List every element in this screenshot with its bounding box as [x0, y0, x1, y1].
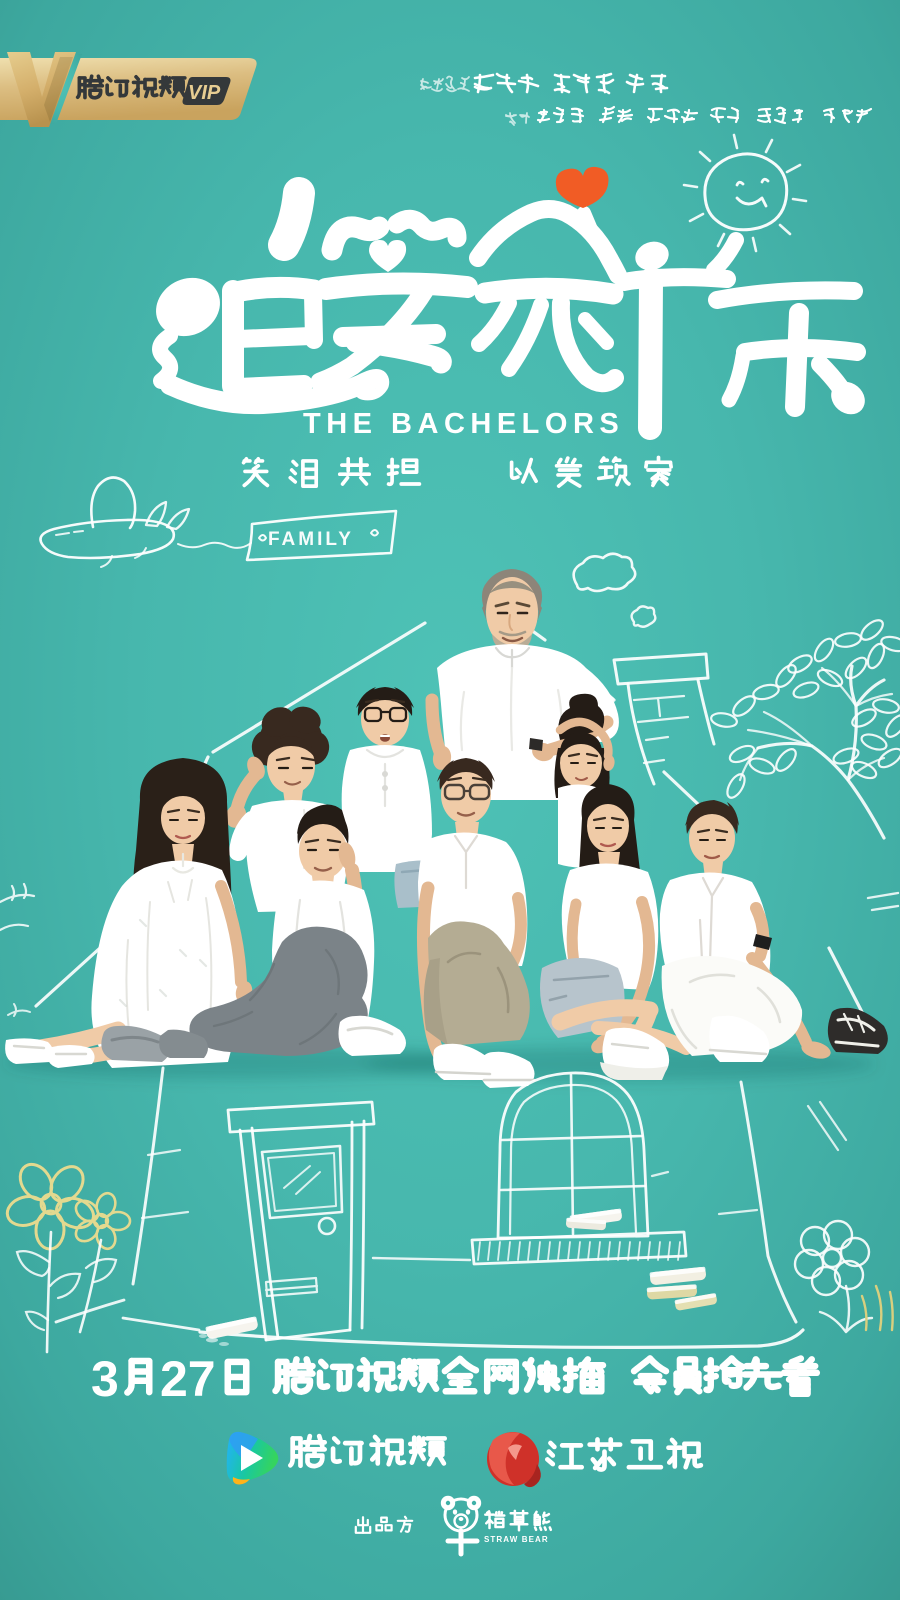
- svg-text:FAMILY: FAMILY: [268, 529, 354, 550]
- svg-text:27: 27: [160, 1351, 216, 1407]
- svg-text:VIP: VIP: [188, 82, 221, 104]
- svg-text:STRAW BEAR: STRAW BEAR: [484, 1535, 549, 1544]
- svg-text:3: 3: [91, 1351, 119, 1407]
- svg-text:THE BACHELORS: THE BACHELORS: [303, 408, 624, 440]
